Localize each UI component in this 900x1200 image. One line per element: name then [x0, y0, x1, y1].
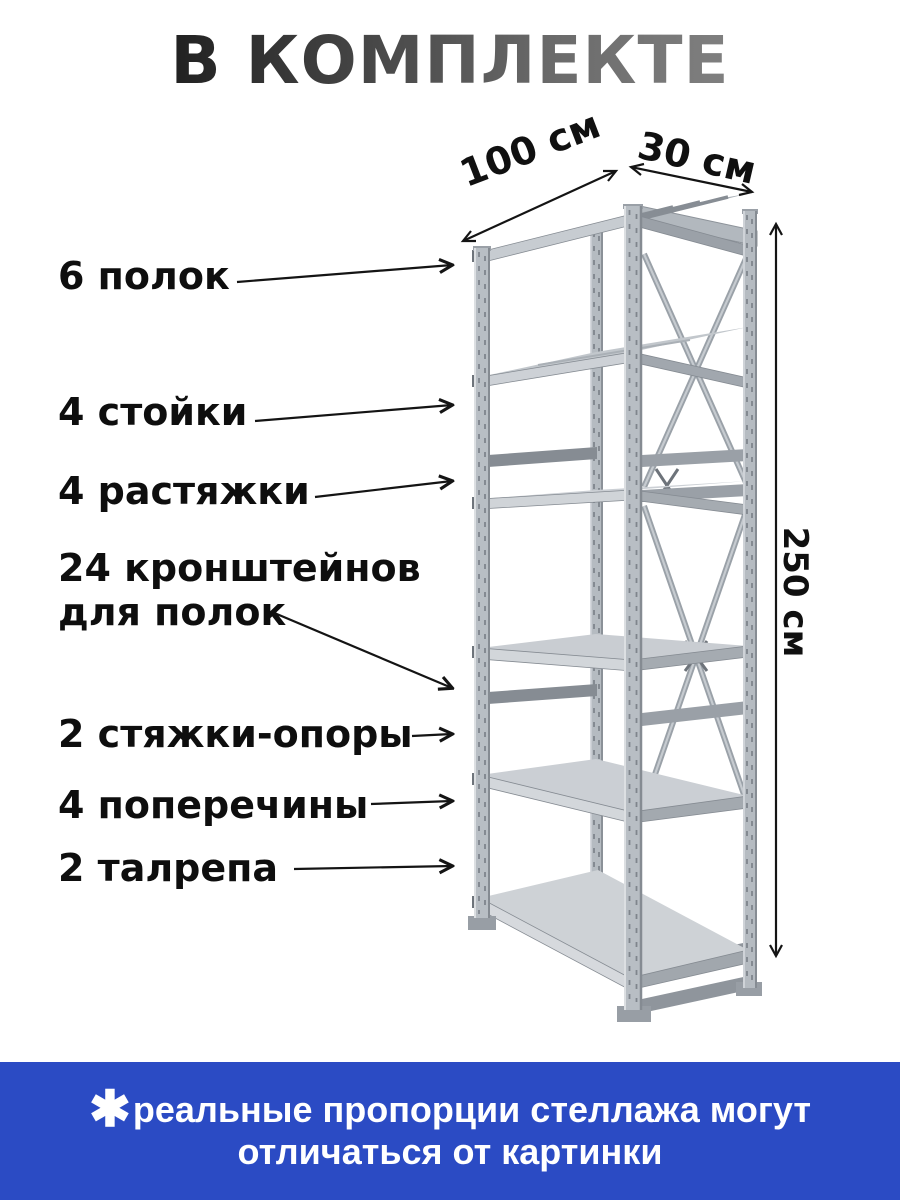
height-dimension-label: 250 см — [775, 512, 815, 672]
asterisk-mark: ✱ — [89, 1091, 131, 1127]
disclaimer-line-2: отличаться от картинки — [238, 1131, 663, 1173]
callout-arrow-turnbuckles — [294, 866, 452, 869]
disclaimer-text-line-2: отличаться от картинки — [238, 1131, 663, 1173]
kit-item-braces: 4 растяжки — [58, 469, 310, 513]
callout-arrow-posts — [255, 405, 452, 421]
kit-item-turnbuckles: 2 талрепа — [58, 846, 278, 890]
disclaimer-line-1: ✱ реальные пропорции стеллажа могут — [89, 1089, 811, 1131]
kit-item-shelves: 6 полок — [58, 254, 230, 298]
kit-item-crossbars: 4 поперечины — [58, 783, 368, 827]
disclaimer-banner: ✱ реальные пропорции стеллажа могут отли… — [0, 1062, 900, 1200]
product-infographic: В КОМПЛЕКТЕ — [0, 0, 900, 1200]
disclaimer-text-line-1: реальные пропорции стеллажа могут — [133, 1089, 811, 1131]
callout-arrow-tie-beams — [412, 734, 452, 736]
rack-shelf-brackets — [472, 212, 632, 988]
rack-post-front-left — [468, 246, 496, 930]
callout-arrow-shelves — [237, 265, 452, 282]
rack-post-back-left — [589, 226, 604, 950]
rack-post-back-right — [736, 209, 762, 996]
rack-shelves — [480, 194, 750, 990]
callout-arrow-crossbars — [371, 801, 452, 804]
kit-item-posts: 4 стойки — [58, 390, 247, 434]
rack-side-beams — [640, 206, 757, 1013]
callout-arrow-braces — [315, 481, 452, 497]
kit-item-tie-beams: 2 стяжки-опоры — [58, 712, 413, 756]
kit-item-brackets: 24 кронштейнов для полок — [58, 546, 423, 634]
